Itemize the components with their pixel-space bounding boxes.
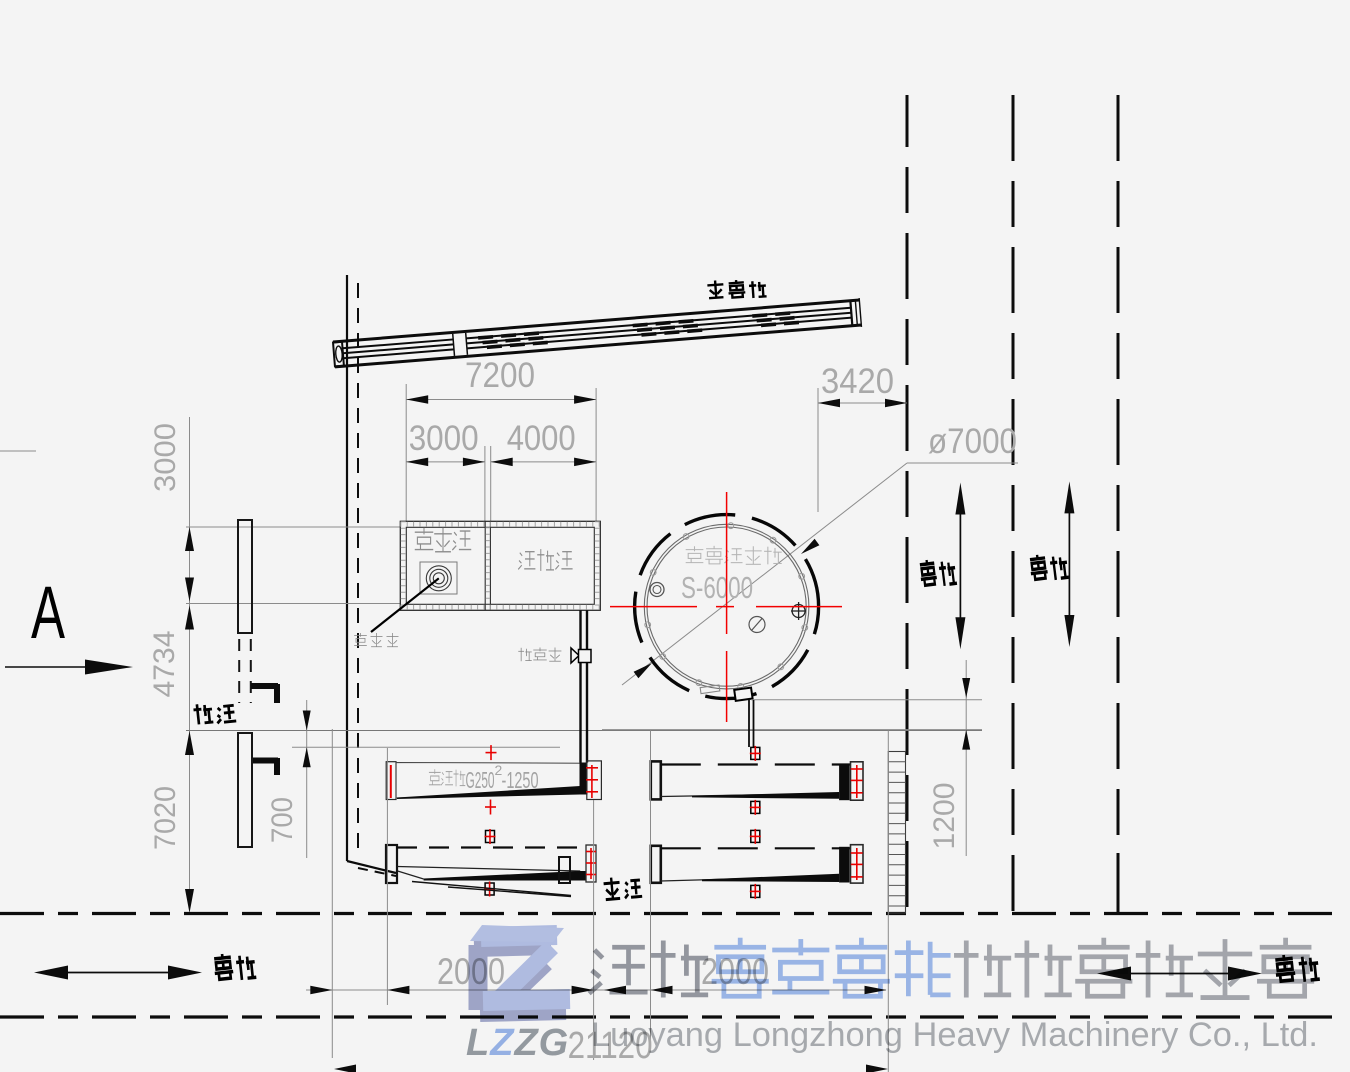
svg-text:Luoyang Longzhong Heavy Machin: Luoyang Longzhong Heavy Machinery Co., L… [591, 1016, 1318, 1054]
svg-text:4734: 4734 [148, 631, 181, 698]
svg-text:G250: G250 [466, 767, 495, 793]
svg-text:3000: 3000 [409, 419, 479, 458]
svg-text:1200: 1200 [928, 783, 961, 850]
svg-text:ø7000: ø7000 [928, 422, 1017, 461]
svg-text:7020: 7020 [149, 786, 182, 850]
svg-text:4000: 4000 [507, 419, 576, 458]
svg-text:3420: 3420 [821, 362, 894, 401]
svg-text:-1250: -1250 [502, 767, 539, 793]
svg-text:A: A [31, 571, 65, 654]
svg-text:S-6000: S-6000 [681, 570, 753, 605]
svg-text:7200: 7200 [465, 356, 535, 395]
svg-text:3000: 3000 [149, 423, 182, 492]
svg-text:LZZG: LZZG [466, 1022, 569, 1064]
svg-text:700: 700 [266, 797, 299, 843]
